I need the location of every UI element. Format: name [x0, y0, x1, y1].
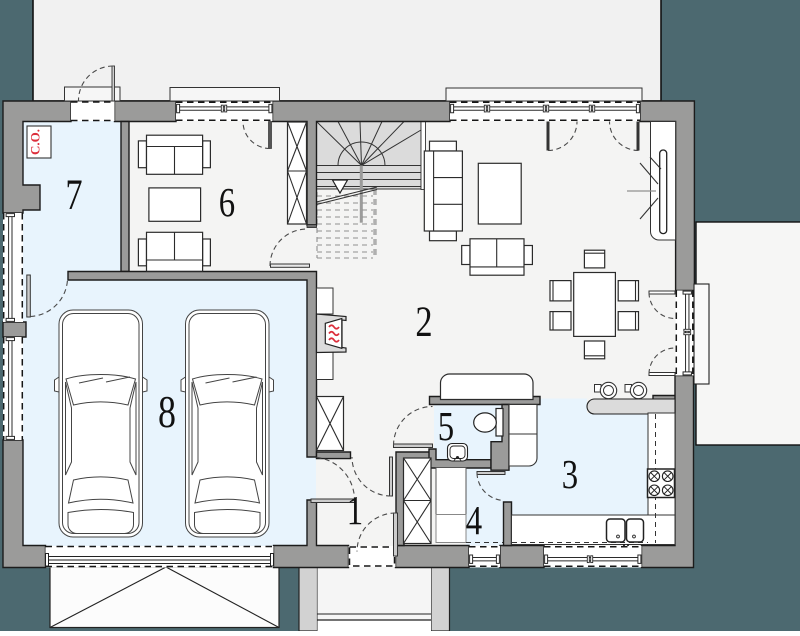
svg-text:4: 4: [466, 499, 482, 544]
svg-text:5: 5: [438, 405, 454, 450]
svg-text:2: 2: [415, 298, 432, 345]
svg-text:3: 3: [562, 453, 578, 498]
svg-text:C.O.: C.O.: [28, 129, 43, 155]
svg-text:6: 6: [219, 181, 235, 226]
svg-text:1: 1: [347, 489, 363, 534]
svg-text:7: 7: [65, 171, 82, 218]
svg-text:8: 8: [158, 387, 176, 437]
